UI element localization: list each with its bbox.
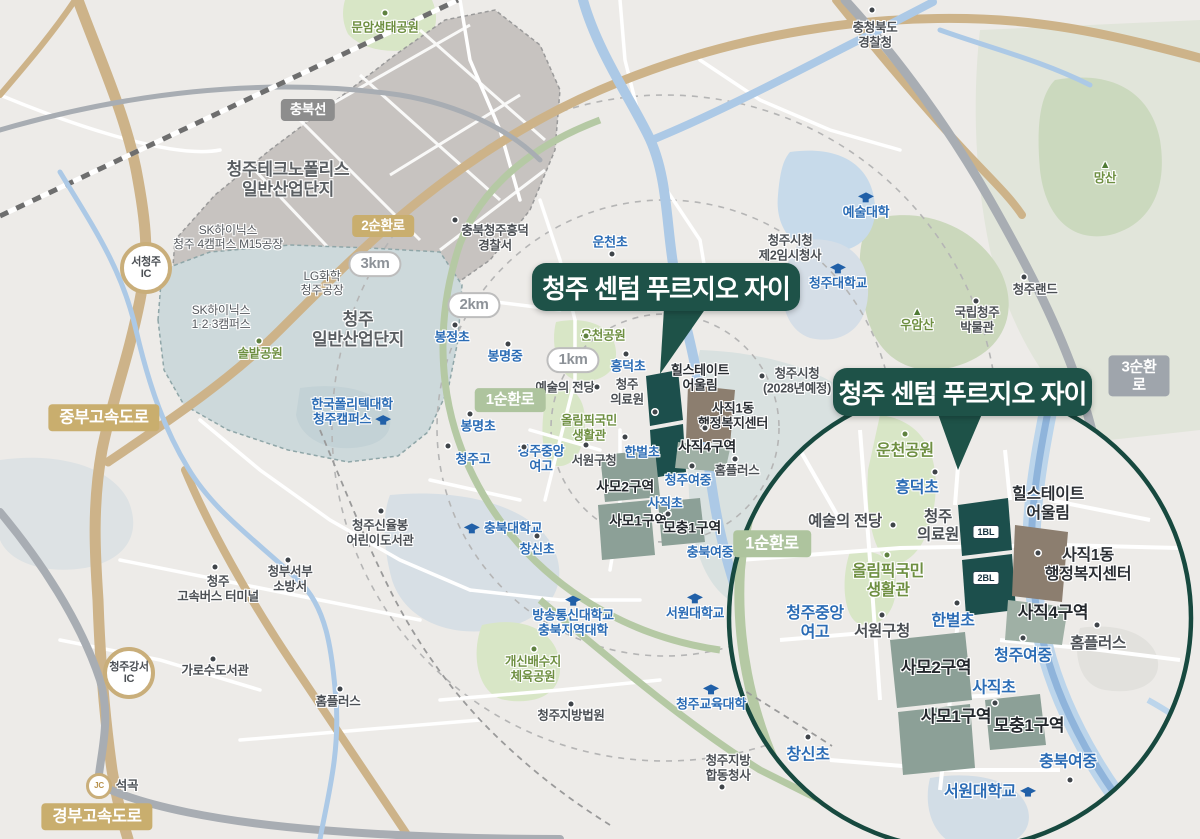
map-label-text: 청주중앙 여고 (786, 605, 844, 641)
inset-label-layer: 운천공원흥덕초예술의 전당청주 의료원힐스테이트 어울림사직1동 행정복지센터1… (0, 0, 1200, 839)
map-label: 운천공원 (876, 443, 934, 462)
poi-dot (1068, 778, 1073, 783)
map-label-text: 운천공원 (876, 443, 934, 460)
map-label: 청주 의료원 (917, 509, 959, 546)
map-label-text: 예술의 전당 (808, 513, 882, 530)
map-label-text: 1순환로 (745, 534, 799, 552)
poi-dot (903, 432, 908, 437)
road-badge-1st-ring-inset: 1순환로 (733, 530, 811, 557)
map-label-text: 흥덕초 (895, 480, 938, 497)
graduation-cap-icon (1020, 787, 1036, 798)
poi-dot (993, 701, 998, 706)
poi-dot (885, 553, 890, 558)
map-label: 청주중앙 여고 (786, 605, 844, 643)
map-label-text: 사직4구역 (1018, 603, 1089, 622)
project-title-badge-inset: 청주 센텀 푸르지오 자이 (833, 368, 1092, 416)
map-label-text: 청주 의료원 (917, 509, 959, 544)
poi-dot (933, 470, 938, 475)
map-label-text: 서원대학교 (944, 784, 1016, 801)
map-label: 서원대학교 (944, 784, 1036, 803)
map-label-text: 한벌초 (931, 613, 974, 630)
map-label-text: 충북여중 (1039, 754, 1097, 771)
poi-dot (891, 523, 896, 528)
map-label: 사모1구역 (921, 707, 992, 727)
location-map: 청주 센텀 푸르지오 자이 청주 센텀 푸르지오 자이 1BL 2BL 문암생태… (0, 0, 1200, 839)
map-label: 힐스테이트 어울림 (1012, 486, 1084, 524)
poi-dot (880, 613, 885, 618)
poi-dot (1095, 623, 1100, 628)
poi-dot (1021, 636, 1026, 641)
map-label-text: 홈플러스 (1070, 635, 1126, 652)
map-label: 서원구청 (854, 623, 910, 641)
map-label: 모충1구역 (994, 716, 1065, 736)
map-label: 흥덕초 (895, 480, 938, 499)
map-label: 청주여중 (994, 648, 1052, 667)
map-label-text: 사직초 (972, 680, 1015, 697)
map-label-text: 올림픽국민 생활관 (852, 563, 924, 599)
poi-dot (1036, 551, 1041, 556)
map-label: 사모2구역 (901, 658, 972, 678)
map-label: 충북여중 (1039, 754, 1097, 773)
poi-dot (806, 735, 811, 740)
map-label-text: 사모2구역 (901, 658, 972, 677)
project-title-badge-main: 청주 센텀 푸르지오 자이 (532, 263, 800, 311)
map-label-text: 청주여중 (994, 648, 1052, 665)
map-label-text: 사직1동 행정복지센터 (1045, 547, 1132, 583)
map-label-text: 서원구청 (854, 623, 910, 640)
map-label-text: 창신초 (786, 747, 829, 764)
map-label: 사직4구역 (1018, 603, 1089, 623)
map-label: 창신초 (786, 747, 829, 766)
poi-dot (955, 601, 960, 606)
map-label: 사직1동 행정복지센터 (1045, 547, 1132, 585)
map-label: 예술의 전당 (808, 513, 882, 531)
map-label: 홈플러스 (1070, 635, 1126, 653)
map-label: 사직초 (972, 680, 1015, 699)
site-block-1bl-tag: 1BL (972, 525, 999, 539)
map-label: 한벌초 (931, 613, 974, 632)
map-label-text: 사모1구역 (921, 707, 992, 726)
map-label-text: 모충1구역 (994, 716, 1065, 735)
site-block-2bl-tag: 2BL (972, 571, 999, 585)
map-label-text: 힐스테이트 어울림 (1012, 486, 1084, 522)
map-label: 올림픽국민 생활관 (852, 563, 924, 601)
